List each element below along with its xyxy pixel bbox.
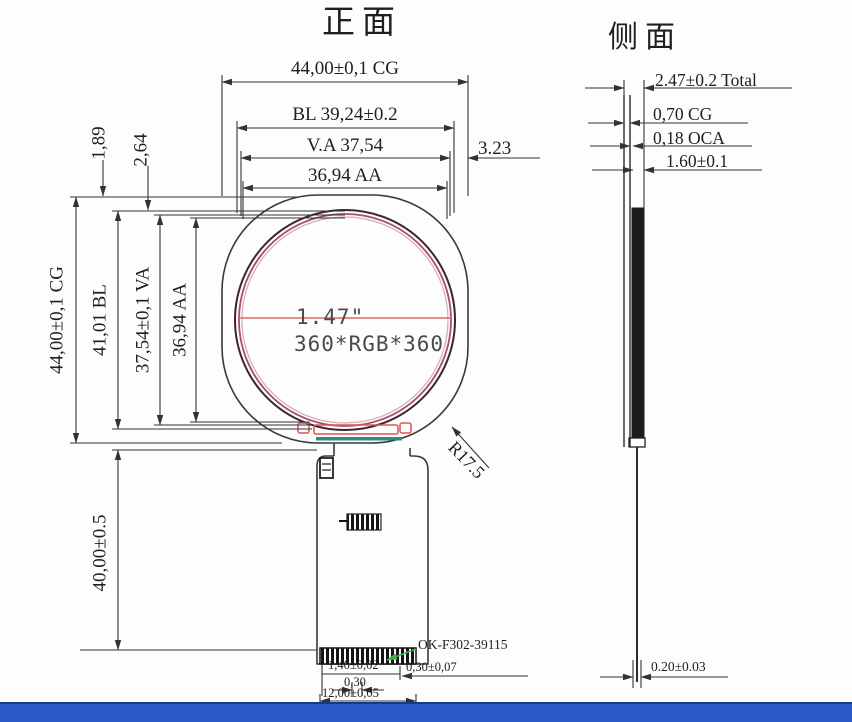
dim-front-cg-width: 44,00±0,1 CG — [225, 59, 465, 79]
side-dimension-lines — [585, 80, 792, 688]
dim-front-gap2: 2,64 — [132, 133, 151, 166]
dim-side-cg: 0,70 CG — [653, 105, 712, 123]
side-module-foot — [629, 438, 645, 447]
dim-front-margin: 3.23 — [478, 139, 511, 159]
drawing-canvas: 正面 侧面 44,00±0,1 CG BL 39,24±0.2 V.A 37,5… — [0, 0, 852, 722]
screen-size-label: 1.47" — [296, 306, 364, 328]
dim-front-aa-height: 36,94 AA — [171, 283, 190, 357]
dim-side-total: 2.47±0.2 Total — [655, 71, 757, 89]
dim-front-bl-height: 41,01 BL — [91, 284, 110, 356]
tail-clip-component — [320, 458, 333, 478]
front-view-title: 正面 — [322, 6, 402, 41]
connector-part-number: OK-F302-39115 — [418, 638, 508, 652]
dim-tail-width: 12,00±0,05 — [322, 687, 379, 700]
front-bottom-seal — [298, 423, 411, 441]
dim-front-cg-height: 44,00±0,1 CG — [48, 266, 67, 374]
dim-side-fpc: 0.20±0.03 — [651, 660, 706, 674]
dim-pad: 1,40±0,02 — [328, 659, 379, 672]
dim-front-gap1: 1,89 — [90, 126, 109, 159]
dim-front-va-width: V.A 37,54 — [225, 136, 465, 156]
dim-front-aa-width: 36,94 AA — [225, 166, 465, 186]
dim-pad-offset: 0,30±0,07 — [406, 661, 457, 674]
dim-front-va-height: 37,54±0,1 VA — [134, 267, 153, 373]
side-view-stack — [624, 95, 645, 682]
dim-front-bl-width: BL 39,24±0.2 — [225, 105, 465, 125]
dim-side-oca: 0,18 OCA — [653, 129, 725, 147]
screen-resolution-label: 360*RGB*360 — [294, 333, 444, 355]
dim-side-module: 1.60±0.1 — [666, 152, 728, 170]
side-display-module — [632, 208, 644, 438]
tail-ic-footprint — [347, 514, 381, 530]
dim-fpc-length: 40,00±0.5 — [91, 515, 110, 592]
footer-bar — [0, 702, 852, 722]
side-view-title: 侧面 — [608, 22, 682, 54]
front-fpc-tail — [317, 443, 428, 664]
